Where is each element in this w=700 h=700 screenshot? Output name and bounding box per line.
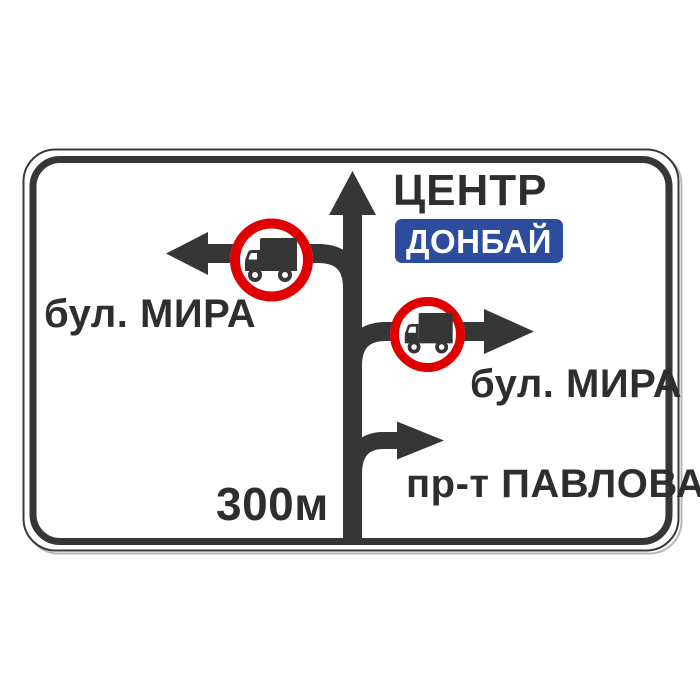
destination-left-label: бул. МИРА (44, 294, 256, 334)
no-trucks-icon (230, 219, 313, 302)
destination-straight-label: ЦЕНТР (393, 169, 548, 213)
distance-label: 300м (216, 481, 329, 527)
destination-city-plate: ДОНБАЙ (395, 219, 563, 263)
road-sign-canvas: ЦЕНТР ДОНБАЙ бул. МИРА бул. МИРА пр-т ПА… (0, 0, 700, 700)
destination-secondary-right-label: пр-т ПАВЛОВА (406, 464, 700, 504)
city-plate-text: ДОНБАЙ (406, 225, 552, 258)
no-trucks-icon (390, 297, 465, 372)
main-road-stem (343, 205, 362, 541)
junction-diagram (0, 0, 700, 700)
destination-right-label: бул. МИРА (470, 364, 682, 404)
